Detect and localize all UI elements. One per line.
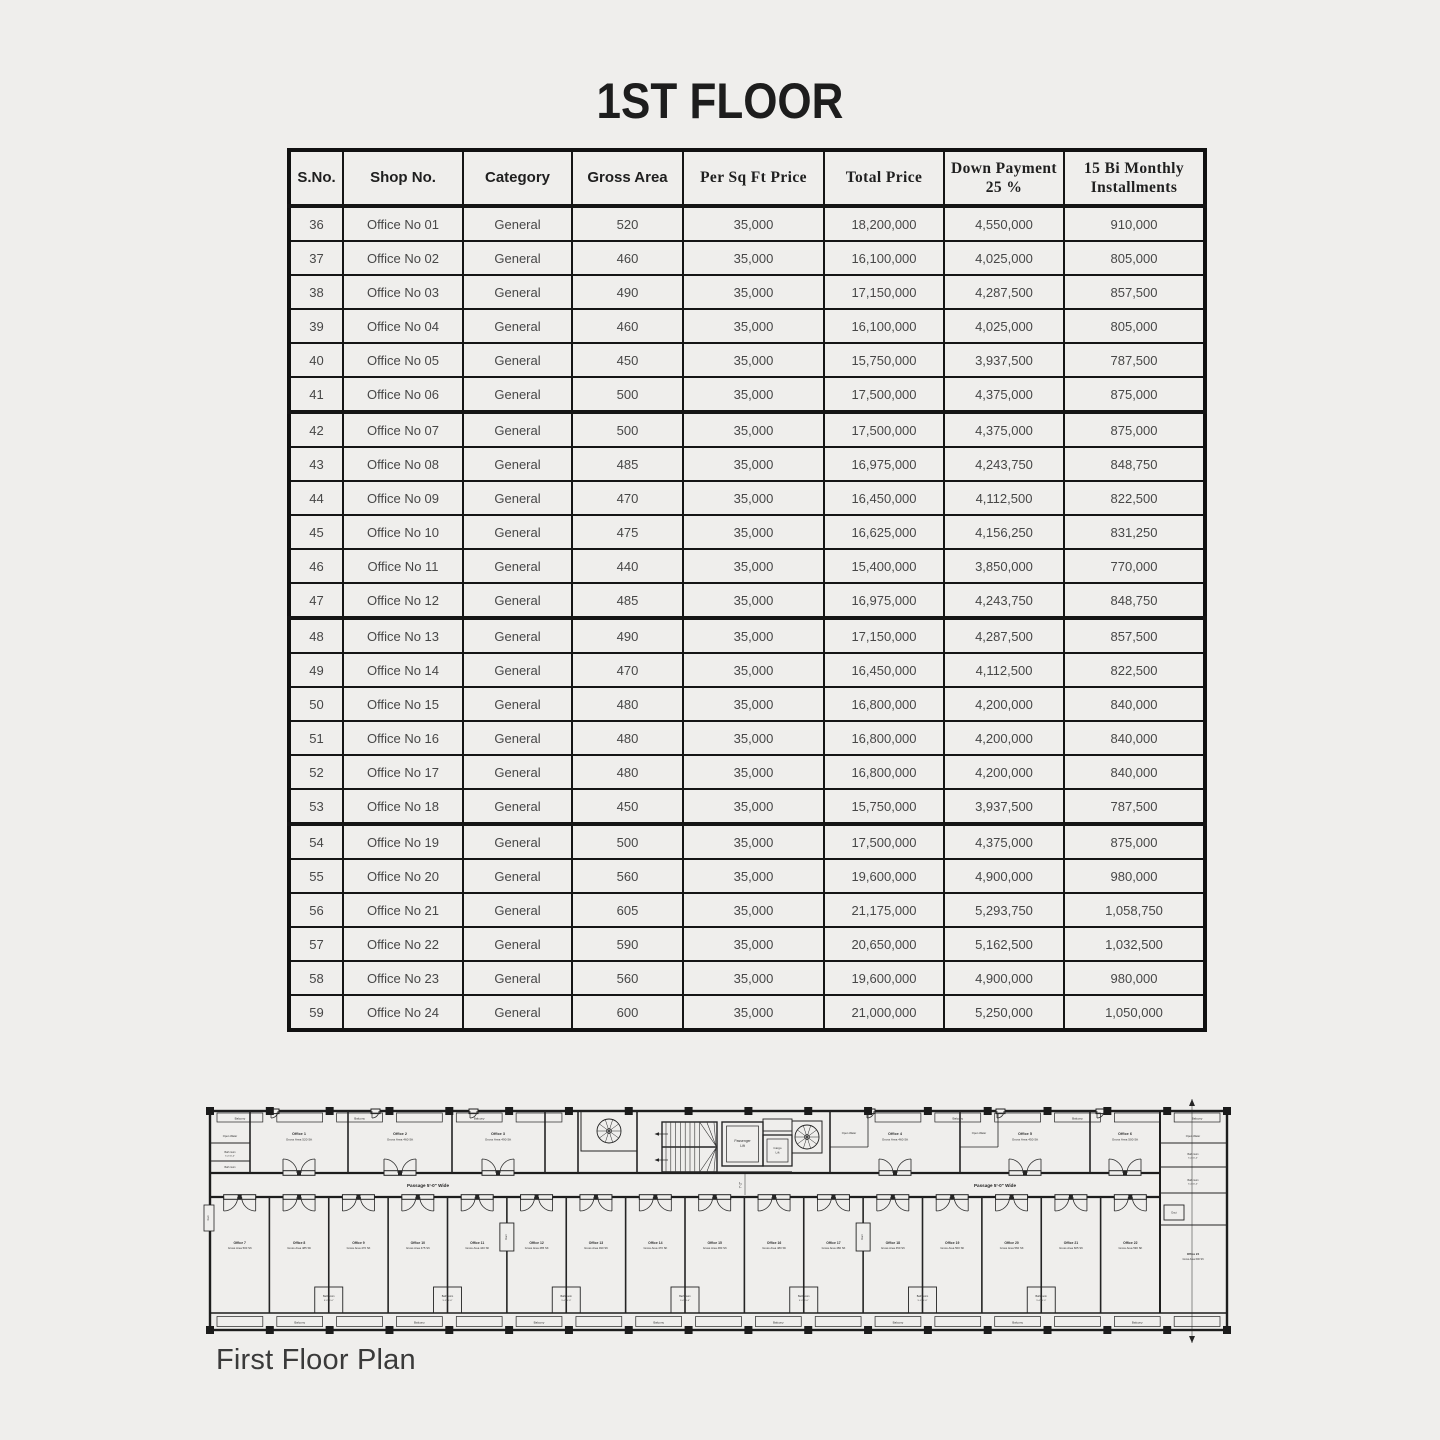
table-cell: General: [463, 755, 572, 789]
balcony-label: Balcony: [653, 1321, 664, 1325]
plan-room-label: Office 1: [292, 1132, 306, 1136]
table-cell: 475: [572, 515, 683, 549]
door-jamb: [950, 1194, 954, 1199]
plan-room-area-label: Gross Area 500 Sft: [228, 1246, 252, 1250]
door-jamb: [772, 1194, 776, 1199]
table-cell: 58: [289, 961, 343, 995]
floor-plan-drawing: 7'-2" Passenger Lift Cargo Lift Passage …: [200, 1096, 1245, 1348]
plan-room-area-label: Gross Area 490 Sft: [485, 1138, 511, 1142]
table-cell: 54: [289, 824, 343, 859]
table-cell: 53: [289, 789, 343, 824]
price-table: S.No.Shop No.CategoryGross AreaPer Sq Ft…: [287, 148, 1207, 1032]
duct-label: Duct: [860, 1234, 864, 1240]
duct-label: Duct: [207, 1215, 210, 1220]
table-cell: 55: [289, 859, 343, 893]
stair-winder: [714, 1123, 716, 1146]
bath-room-label: Bath room: [917, 1295, 929, 1298]
balcony-pier: [625, 1326, 633, 1334]
table-cell: 500: [572, 377, 683, 412]
table-cell: General: [463, 961, 572, 995]
balcony-pier: [326, 1107, 334, 1115]
table-row: 45Office No 10General47535,00016,625,000…: [289, 515, 1205, 549]
table-cell: 38: [289, 275, 343, 309]
balcony-rail: [337, 1317, 383, 1327]
plan-room-area-label: Gross Area 590 Sft: [1118, 1246, 1142, 1250]
plan-room-label: Office 21: [1064, 1241, 1078, 1245]
table-row: 57Office No 22General59035,00020,650,000…: [289, 927, 1205, 961]
door-jamb: [893, 1170, 897, 1175]
table-row: 36Office No 01General52035,00018,200,000…: [289, 206, 1205, 241]
table-cell: General: [463, 377, 572, 412]
stair-winder: [707, 1148, 716, 1171]
door-jamb: [356, 1194, 360, 1199]
balcony-pier: [804, 1107, 812, 1115]
bath-room-label: Bath room: [560, 1295, 572, 1298]
table-cell: 4,200,000: [944, 687, 1064, 721]
table-cell: 1,032,500: [1064, 927, 1205, 961]
table-cell: General: [463, 687, 572, 721]
balcony-pier: [744, 1326, 752, 1334]
table-cell: General: [463, 653, 572, 687]
table-cell: 16,800,000: [824, 721, 944, 755]
door-jamb: [297, 1194, 301, 1199]
table-cell: General: [463, 995, 572, 1030]
bath-room-label: 5'-0"x5'-0": [1036, 1300, 1046, 1302]
plan-room-label: Office 14: [648, 1241, 662, 1245]
balcony-pier: [804, 1326, 812, 1334]
table-cell: 56: [289, 893, 343, 927]
duct-label: Duct: [1171, 1211, 1177, 1215]
plan-room-label: Office 17: [826, 1241, 840, 1245]
balcony-pier: [625, 1107, 633, 1115]
door-jamb: [475, 1194, 479, 1199]
passenger-lift-label-2: Lift: [740, 1144, 745, 1148]
table-cell: 4,287,500: [944, 275, 1064, 309]
table-cell: 3,937,500: [944, 343, 1064, 377]
table-cell: 460: [572, 309, 683, 343]
balcony-pier: [1103, 1326, 1111, 1334]
door-jamb: [1010, 1194, 1014, 1199]
table-cell: 35,000: [683, 995, 824, 1030]
table-cell: 3,937,500: [944, 789, 1064, 824]
open-water-label-3: Open Water: [972, 1131, 986, 1135]
table-cell: 35,000: [683, 206, 824, 241]
balcony-rail: [696, 1317, 742, 1327]
table-cell: 40: [289, 343, 343, 377]
spiral-spoke: [797, 1137, 807, 1144]
table-row: 46Office No 11General44035,00015,400,000…: [289, 549, 1205, 583]
table-cell: 37: [289, 241, 343, 275]
table-cell: Office No 20: [343, 859, 463, 893]
plan-room-area-label: Gross Area 460 Sft: [882, 1138, 908, 1142]
table-cell: 590: [572, 927, 683, 961]
table-cell: Office No 22: [343, 927, 463, 961]
bath-room-label: Bath room: [798, 1295, 810, 1298]
plan-room-label: Office 12: [529, 1241, 543, 1245]
table-cell: 16,100,000: [824, 309, 944, 343]
table-cell: 16,450,000: [824, 653, 944, 687]
table-cell: 16,975,000: [824, 583, 944, 618]
table-cell: 44: [289, 481, 343, 515]
table-cell: 4,112,500: [944, 653, 1064, 687]
balcony-pier: [1223, 1326, 1231, 1334]
table-cell: 35,000: [683, 927, 824, 961]
table-cell: 480: [572, 721, 683, 755]
plan-room-label: Office 2: [393, 1132, 407, 1136]
table-cell: 470: [572, 653, 683, 687]
door-jamb: [1123, 1170, 1127, 1175]
balcony-pier: [445, 1107, 453, 1115]
table-cell: 4,550,000: [944, 206, 1064, 241]
balcony-rail: [815, 1317, 861, 1327]
passage-label-right: Passage 5'-0" Wide: [974, 1183, 1016, 1188]
table-cell: Office No 21: [343, 893, 463, 927]
balcony-rail: [995, 1113, 1041, 1122]
table-row: 40Office No 05General45035,00015,750,000…: [289, 343, 1205, 377]
table-cell: General: [463, 583, 572, 618]
table-cell: 805,000: [1064, 309, 1205, 343]
column-header: S.No.: [289, 150, 343, 206]
table-cell: General: [463, 206, 572, 241]
table-cell: General: [463, 893, 572, 927]
door-jamb: [238, 1194, 242, 1199]
table-cell: 857,500: [1064, 618, 1205, 653]
table-cell: 36: [289, 206, 343, 241]
table-cell: 35,000: [683, 343, 824, 377]
table-cell: 980,000: [1064, 859, 1205, 893]
table-cell: 787,500: [1064, 343, 1205, 377]
table-cell: 35,000: [683, 824, 824, 859]
table-cell: Office No 05: [343, 343, 463, 377]
balcony-label: Balcony: [1192, 1117, 1203, 1121]
cargo-lift-label: Cargo: [773, 1146, 782, 1150]
plan-room-area-label: Gross Area 480 Sft: [703, 1246, 727, 1250]
plan-room-label: Office 4: [888, 1132, 903, 1136]
table-cell: 787,500: [1064, 789, 1205, 824]
bath-room-label: Bath room: [679, 1295, 691, 1298]
bath-room-label: 5'-0"x5'-0": [1188, 1158, 1198, 1160]
balcony-label: Balcony: [534, 1321, 545, 1325]
table-cell: 16,100,000: [824, 241, 944, 275]
page: 1ST FLOOR S.No.Shop No.CategoryGross Are…: [0, 0, 1440, 1440]
column-header: Gross Area: [572, 150, 683, 206]
stair-dimension-label: 7'-2": [739, 1182, 743, 1188]
table-cell: General: [463, 721, 572, 755]
open-water-label-4: Open Water: [1186, 1134, 1200, 1138]
table-cell: 16,800,000: [824, 755, 944, 789]
plan-room-label: Office 7: [233, 1241, 246, 1245]
table-cell: 16,450,000: [824, 481, 944, 515]
balcony-rail: [277, 1113, 323, 1122]
table-cell: 4,200,000: [944, 755, 1064, 789]
table-cell: 17,150,000: [824, 275, 944, 309]
table-cell: 600: [572, 995, 683, 1030]
balcony-pier: [984, 1326, 992, 1334]
table-cell: 35,000: [683, 859, 824, 893]
table-cell: Office No 02: [343, 241, 463, 275]
table-cell: 41: [289, 377, 343, 412]
bath-room-label: 5'-0"x5'-0": [225, 1156, 235, 1158]
table-cell: 35,000: [683, 515, 824, 549]
table-cell: Office No 15: [343, 687, 463, 721]
balcony-pier: [984, 1107, 992, 1115]
plan-room-label: Office 8: [293, 1241, 306, 1245]
door-jamb: [653, 1194, 657, 1199]
table-cell: Office No 13: [343, 618, 463, 653]
table-cell: 16,975,000: [824, 447, 944, 481]
table-row: 53Office No 18General45035,00015,750,000…: [289, 789, 1205, 824]
balcony-pier: [1223, 1107, 1231, 1115]
table-row: 41Office No 06General50035,00017,500,000…: [289, 377, 1205, 412]
open-water-label: Open Water: [223, 1134, 237, 1138]
price-table-header: S.No.Shop No.CategoryGross AreaPer Sq Ft…: [289, 150, 1205, 206]
table-cell: Office No 06: [343, 377, 463, 412]
balcony-rail: [217, 1317, 263, 1327]
column-header: Category: [463, 150, 572, 206]
table-cell: Office No 09: [343, 481, 463, 515]
table-cell: 15,750,000: [824, 343, 944, 377]
table-cell: 51: [289, 721, 343, 755]
table-cell: 19,600,000: [824, 859, 944, 893]
bath-room-label: 5'-0"x5'-0": [918, 1300, 928, 1302]
plan-room-label: Office 19: [945, 1241, 959, 1245]
bath-room-label: 5'-0"x5'-0": [324, 1300, 334, 1302]
table-cell: 450: [572, 789, 683, 824]
bath-room-label: 5'-0"x5'-0": [561, 1300, 571, 1302]
door-jamb: [1069, 1194, 1073, 1199]
balcony-label: Balcony: [1012, 1321, 1023, 1325]
balcony-pier: [864, 1326, 872, 1334]
bath-room-label: Bath room: [1035, 1295, 1047, 1298]
balcony-rail: [935, 1317, 981, 1327]
table-cell: 45: [289, 515, 343, 549]
table-cell: 770,000: [1064, 549, 1205, 583]
table-cell: 822,500: [1064, 653, 1205, 687]
table-cell: 605: [572, 893, 683, 927]
plan-room-label: Office 15: [708, 1241, 722, 1245]
balcony-label: Balcony: [474, 1117, 485, 1121]
stair-winder: [707, 1123, 716, 1146]
plan-room-area-label: Gross Area 490 Sft: [584, 1246, 608, 1250]
stair-winder: [700, 1148, 716, 1171]
plan-room-area-label: Gross Area 470 Sft: [643, 1246, 667, 1250]
balcony-label: Balcony: [235, 1117, 246, 1121]
table-cell: 910,000: [1064, 206, 1205, 241]
balcony-rail: [1055, 1317, 1101, 1327]
table-cell: 480: [572, 687, 683, 721]
spiral-spoke: [797, 1130, 807, 1137]
balcony-pier: [924, 1107, 932, 1115]
table-cell: 21,000,000: [824, 995, 944, 1030]
table-cell: 805,000: [1064, 241, 1205, 275]
table-cell: Office No 24: [343, 995, 463, 1030]
balcony-rail: [456, 1317, 502, 1327]
table-cell: Office No 07: [343, 412, 463, 447]
table-row: 47Office No 12General48535,00016,975,000…: [289, 583, 1205, 618]
stair-arrow-head: [655, 1132, 660, 1136]
table-cell: 520: [572, 206, 683, 241]
table-cell: 47: [289, 583, 343, 618]
table-cell: 18,200,000: [824, 206, 944, 241]
table-cell: Office No 19: [343, 824, 463, 859]
table-cell: 4,112,500: [944, 481, 1064, 515]
table-row: 52Office No 17General48035,00016,800,000…: [289, 755, 1205, 789]
balcony-pier: [266, 1107, 274, 1115]
column-header: Shop No.: [343, 150, 463, 206]
table-cell: 560: [572, 961, 683, 995]
table-cell: 42: [289, 412, 343, 447]
bath-room-label: Bath room: [442, 1295, 454, 1298]
balcony-rail: [516, 1113, 562, 1122]
plan-room-area-label: Gross Area 560 Sft: [1000, 1246, 1024, 1250]
balcony-pier: [206, 1326, 214, 1334]
balcony-label: Balcony: [1072, 1117, 1083, 1121]
floor-plan: 7'-2" Passenger Lift Cargo Lift Passage …: [200, 1096, 1245, 1348]
table-cell: 4,900,000: [944, 961, 1064, 995]
table-cell: 21,175,000: [824, 893, 944, 927]
table-cell: Office No 14: [343, 653, 463, 687]
plan-room-label: Office 11: [470, 1241, 484, 1245]
balcony-rail: [576, 1317, 622, 1327]
table-cell: 875,000: [1064, 377, 1205, 412]
plan-room-area-label: Gross Area 600 Sft: [1182, 1258, 1203, 1261]
table-cell: 39: [289, 309, 343, 343]
plan-room-label: Office 9: [352, 1241, 365, 1245]
table-cell: 35,000: [683, 893, 824, 927]
table-cell: 875,000: [1064, 824, 1205, 859]
balcony-pier: [924, 1326, 932, 1334]
table-cell: 560: [572, 859, 683, 893]
table-row: 54Office No 19General50035,00017,500,000…: [289, 824, 1205, 859]
table-cell: 35,000: [683, 789, 824, 824]
plan-room-area-label: Gross Area 470 Sft: [347, 1246, 371, 1250]
table-cell: General: [463, 824, 572, 859]
door-jamb: [496, 1170, 500, 1175]
table-cell: Office No 16: [343, 721, 463, 755]
balcony-pier: [385, 1326, 393, 1334]
balcony-pier: [565, 1326, 573, 1334]
balcony-label: Balcony: [952, 1117, 963, 1121]
balcony-pier: [565, 1107, 573, 1115]
table-cell: 831,250: [1064, 515, 1205, 549]
table-cell: Office No 12: [343, 583, 463, 618]
table-cell: Office No 04: [343, 309, 463, 343]
price-table-body: 36Office No 01General52035,00018,200,000…: [289, 206, 1205, 1030]
table-cell: 4,900,000: [944, 859, 1064, 893]
spiral-spoke: [609, 1124, 619, 1131]
door-jamb: [713, 1194, 717, 1199]
table-cell: 49: [289, 653, 343, 687]
balcony-pier: [685, 1107, 693, 1115]
passenger-lift-label: Passenger: [734, 1139, 751, 1143]
table-cell: Office No 18: [343, 789, 463, 824]
balcony-pier: [744, 1107, 752, 1115]
bath-room-label: Bath room: [1187, 1153, 1198, 1156]
plan-room-area-label: Gross Area 450 Sft: [1012, 1138, 1038, 1142]
cargo-lift-label-2: Lift: [775, 1151, 779, 1155]
table-cell: 35,000: [683, 687, 824, 721]
table-cell: General: [463, 618, 572, 653]
table-cell: 35,000: [683, 275, 824, 309]
table-cell: 16,800,000: [824, 687, 944, 721]
plan-room-label: Office 16: [767, 1241, 781, 1245]
balcony-pier: [505, 1107, 513, 1115]
table-cell: 848,750: [1064, 447, 1205, 481]
table-cell: 840,000: [1064, 755, 1205, 789]
balcony-rail: [875, 1113, 921, 1122]
header-row: S.No.Shop No.CategoryGross AreaPer Sq Ft…: [289, 150, 1205, 206]
balcony-pier: [385, 1107, 393, 1115]
table-cell: 5,162,500: [944, 927, 1064, 961]
table-cell: General: [463, 343, 572, 377]
plan-outer-wall: [210, 1111, 1227, 1330]
balcony-label: Balcony: [414, 1321, 425, 1325]
plan-caption: First Floor Plan: [216, 1344, 416, 1377]
table-cell: General: [463, 515, 572, 549]
table-cell: 485: [572, 447, 683, 481]
table-row: 56Office No 21General60535,00021,175,000…: [289, 893, 1205, 927]
table-cell: 822,500: [1064, 481, 1205, 515]
table-cell: 840,000: [1064, 721, 1205, 755]
door-jamb: [1128, 1194, 1132, 1199]
plan-room-area-label: Gross Area 480 Sft: [762, 1246, 786, 1250]
plan-room-area-label: Gross Area 500 Sft: [1112, 1138, 1138, 1142]
spiral-spoke: [807, 1130, 817, 1137]
table-cell: 450: [572, 343, 683, 377]
table-cell: 1,050,000: [1064, 995, 1205, 1030]
door-jamb: [594, 1194, 598, 1199]
bath-room-label: 5'-0"x5'-0": [443, 1300, 453, 1302]
bath-room-label: Bath room: [224, 1166, 235, 1169]
table-cell: 46: [289, 549, 343, 583]
table-cell: 857,500: [1064, 275, 1205, 309]
table-row: 48Office No 13General49035,00017,150,000…: [289, 618, 1205, 653]
table-cell: 35,000: [683, 583, 824, 618]
table-row: 51Office No 16General48035,00016,800,000…: [289, 721, 1205, 755]
spiral-spoke: [807, 1137, 817, 1144]
open-water-label-2: Open Water: [842, 1131, 856, 1135]
balcony-pier: [326, 1326, 334, 1334]
table-cell: 4,200,000: [944, 721, 1064, 755]
table-cell: General: [463, 789, 572, 824]
table-cell: 35,000: [683, 549, 824, 583]
balcony-label: Balcony: [1132, 1321, 1143, 1325]
table-cell: General: [463, 859, 572, 893]
table-cell: Office No 08: [343, 447, 463, 481]
table-cell: 4,375,000: [944, 824, 1064, 859]
bath-room-label: 5'-0"x5'-0": [1188, 1184, 1198, 1186]
table-cell: 35,000: [683, 412, 824, 447]
dimension-arrow-bottom: [1189, 1336, 1195, 1343]
table-row: 38Office No 03General49035,00017,150,000…: [289, 275, 1205, 309]
table-cell: 35,000: [683, 653, 824, 687]
spiral-spoke: [609, 1131, 619, 1138]
table-cell: 52: [289, 755, 343, 789]
table-cell: 5,293,750: [944, 893, 1064, 927]
bath-room-label: 5'-0"x5'-0": [799, 1300, 809, 1302]
table-cell: 19,600,000: [824, 961, 944, 995]
plan-room-label: Office 6: [1118, 1132, 1132, 1136]
table-cell: 17,500,000: [824, 412, 944, 447]
plan-room-area-label: Gross Area 520 Sft: [286, 1138, 312, 1142]
table-cell: 4,375,000: [944, 377, 1064, 412]
table-row: 43Office No 08General48535,00016,975,000…: [289, 447, 1205, 481]
table-cell: Office No 10: [343, 515, 463, 549]
table-cell: 57: [289, 927, 343, 961]
table-cell: 35,000: [683, 721, 824, 755]
door-jamb: [416, 1194, 420, 1199]
table-cell: General: [463, 412, 572, 447]
